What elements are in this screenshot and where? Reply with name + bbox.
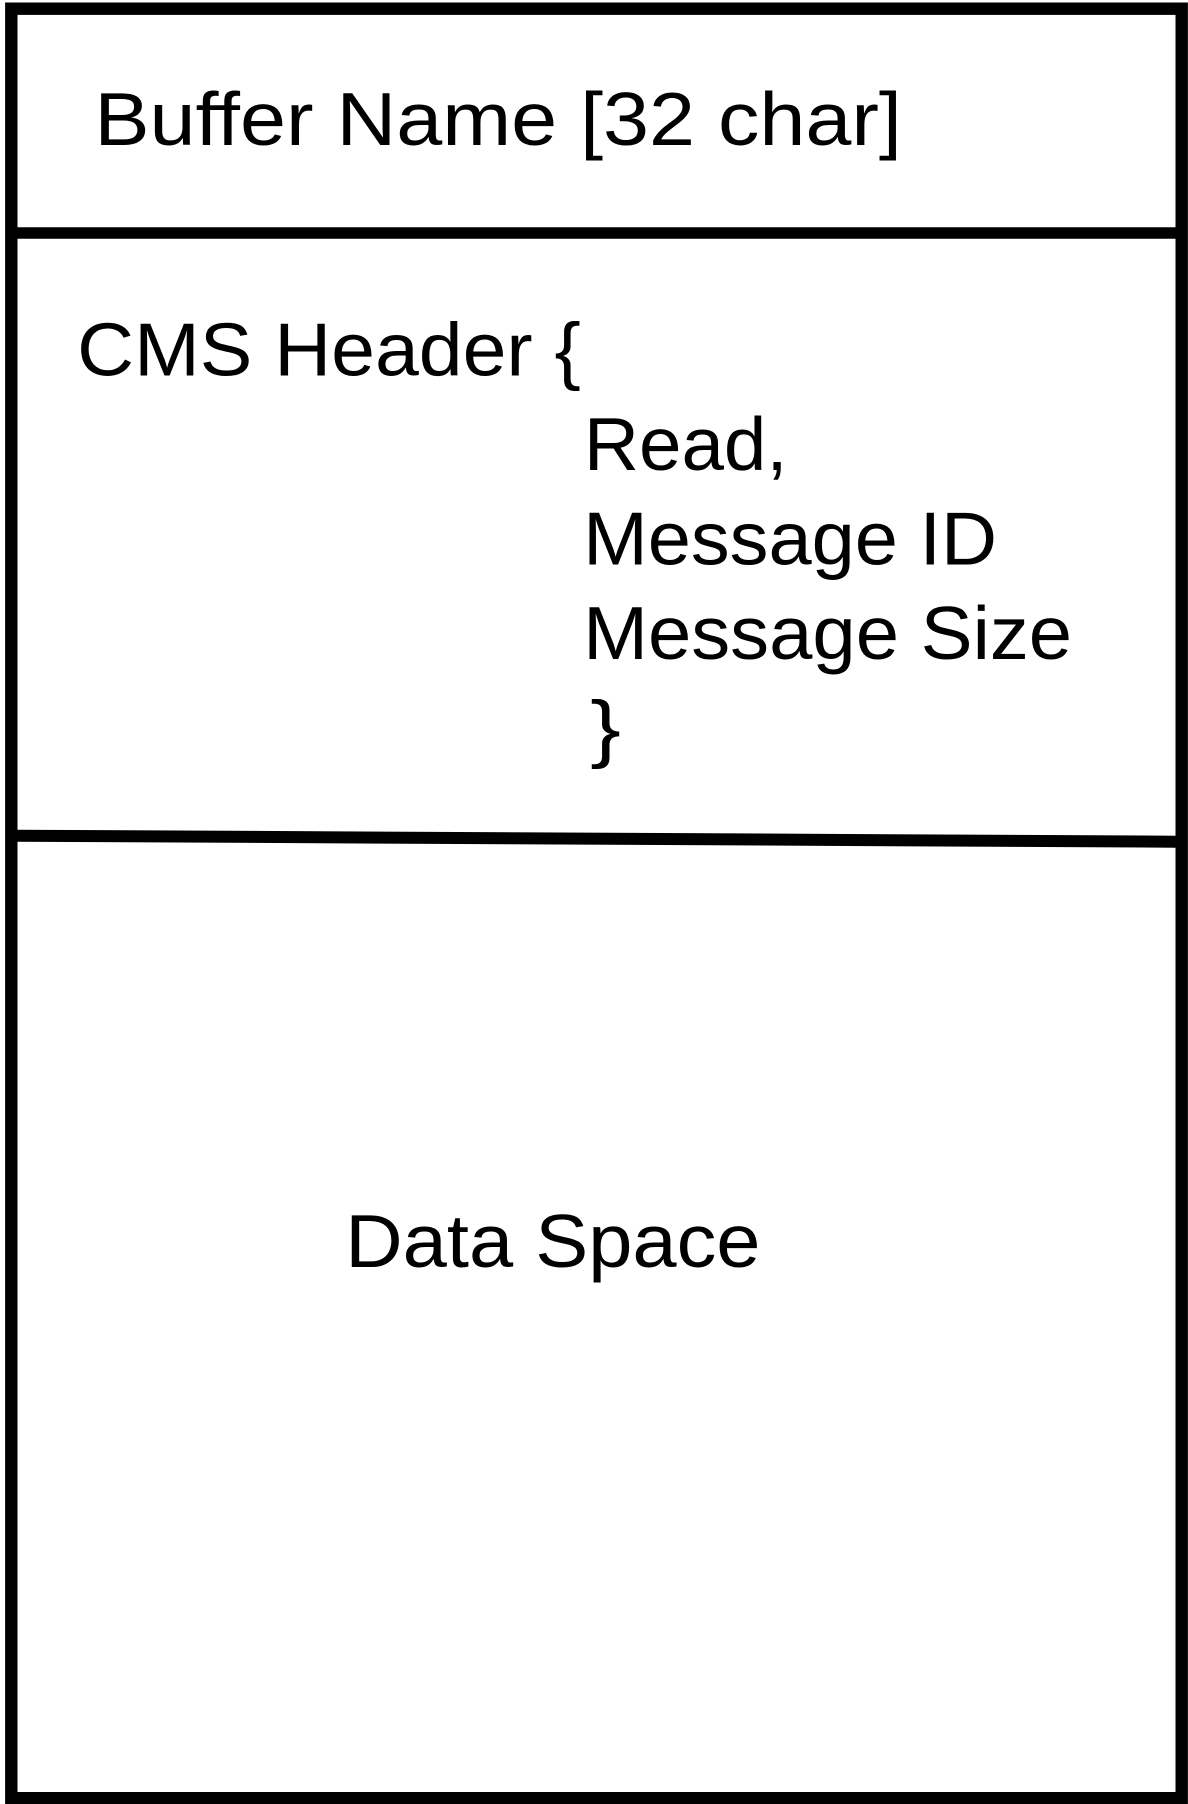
svg-text:}: }: [590, 685, 621, 769]
svg-text:Buffer Name [32 char]: Buffer Name [32 char]: [94, 77, 902, 161]
svg-text:Data Space: Data Space: [345, 1199, 760, 1283]
svg-text:Message ID: Message ID: [583, 496, 997, 580]
svg-text:CMS Header {: CMS Header {: [77, 308, 581, 392]
svg-text:Read,: Read,: [584, 402, 788, 486]
svg-text:Message Size: Message Size: [583, 591, 1072, 675]
